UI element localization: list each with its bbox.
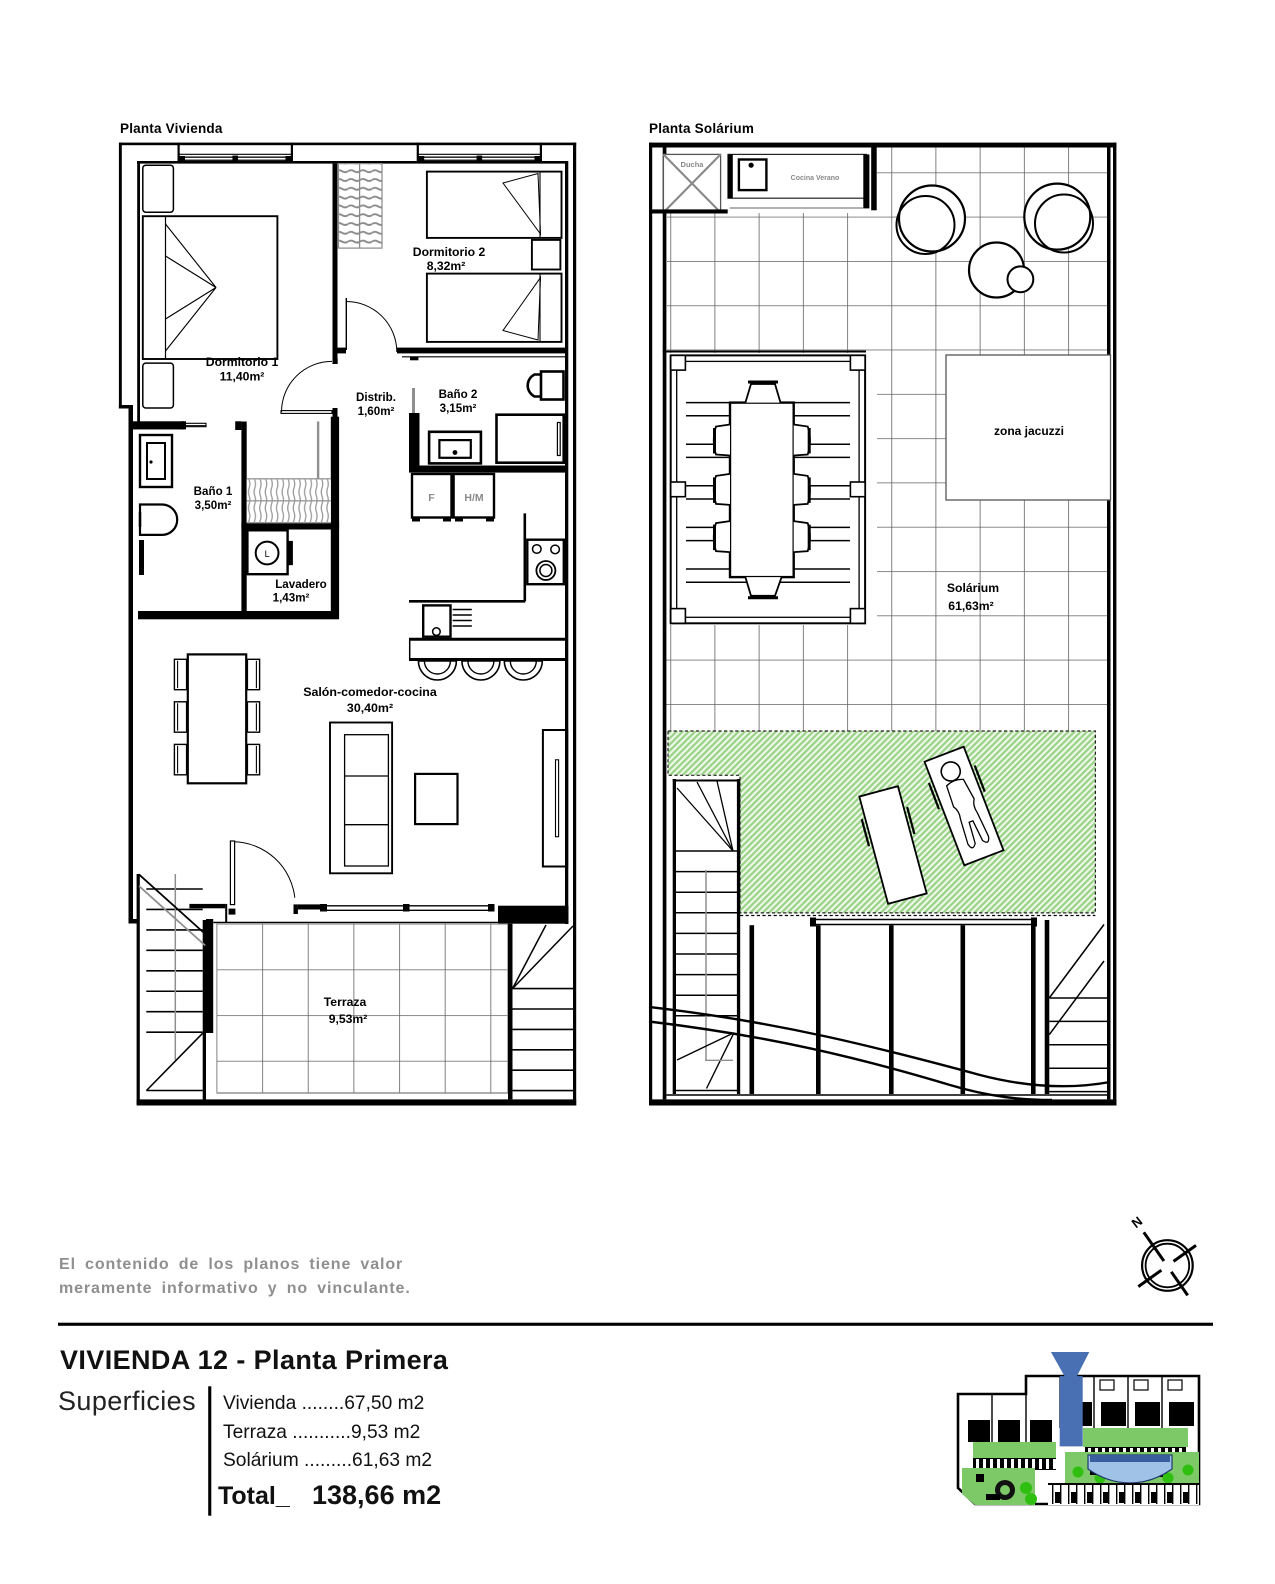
svg-text:61,63m²: 61,63m² (948, 599, 993, 613)
svg-text:Dormitorio 2: Dormitorio 2 (413, 245, 486, 259)
svg-text:zona jacuzzi: zona jacuzzi (994, 424, 1064, 438)
svg-text:Salón-comedor-cocina: Salón-comedor-cocina (303, 685, 437, 699)
svg-text:9,53m²: 9,53m² (329, 1012, 368, 1026)
svg-text:1,60m²: 1,60m² (358, 405, 395, 418)
svg-text:Planta Vivienda: Planta Vivienda (120, 121, 223, 136)
svg-text:Solárium: Solárium (947, 581, 999, 595)
svg-text:Planta Solárium: Planta Solárium (649, 121, 754, 136)
svg-text:Ducha: Ducha (681, 160, 705, 169)
svg-text:El contenido de los planos tie: El contenido de los planos tiene valor (59, 1256, 403, 1273)
svg-text:138,66 m2: 138,66 m2 (312, 1480, 441, 1510)
svg-text:11,40m²: 11,40m² (220, 370, 265, 384)
svg-text:Vivienda ........67,50 m2: Vivienda ........67,50 m2 (223, 1393, 424, 1414)
svg-text:Terraza ...........9,53 m2: Terraza ...........9,53 m2 (223, 1422, 420, 1443)
svg-text:Terraza: Terraza (324, 995, 367, 1009)
svg-text:Baño 2: Baño 2 (439, 388, 478, 401)
svg-text:Total_: Total_ (218, 1482, 291, 1510)
svg-text:Lavadero: Lavadero (275, 578, 327, 591)
svg-text:Solárium .........61,63 m2: Solárium .........61,63 m2 (223, 1450, 432, 1471)
svg-text:30,40m²: 30,40m² (347, 701, 393, 715)
svg-text:H/M: H/M (464, 492, 484, 504)
svg-text:Cocina Verano: Cocina Verano (791, 175, 840, 182)
svg-text:Baño 1: Baño 1 (194, 485, 233, 498)
svg-text:L: L (265, 549, 270, 559)
svg-text:VIVIENDA 12 - Planta Primera: VIVIENDA 12 - Planta Primera (60, 1345, 449, 1375)
svg-text:Superficies: Superficies (58, 1386, 196, 1416)
svg-text:1,43m²: 1,43m² (273, 592, 310, 605)
svg-text:F: F (428, 492, 435, 504)
svg-text:3,50m²: 3,50m² (195, 499, 232, 512)
svg-text:Dormitorio 1: Dormitorio 1 (206, 355, 279, 369)
svg-text:Distrib.: Distrib. (356, 391, 396, 404)
svg-text:3,15m²: 3,15m² (440, 402, 477, 415)
svg-text:meramente informativo y no vin: meramente informativo y no vinculante. (59, 1280, 411, 1297)
svg-text:8,32m²: 8,32m² (427, 259, 466, 273)
